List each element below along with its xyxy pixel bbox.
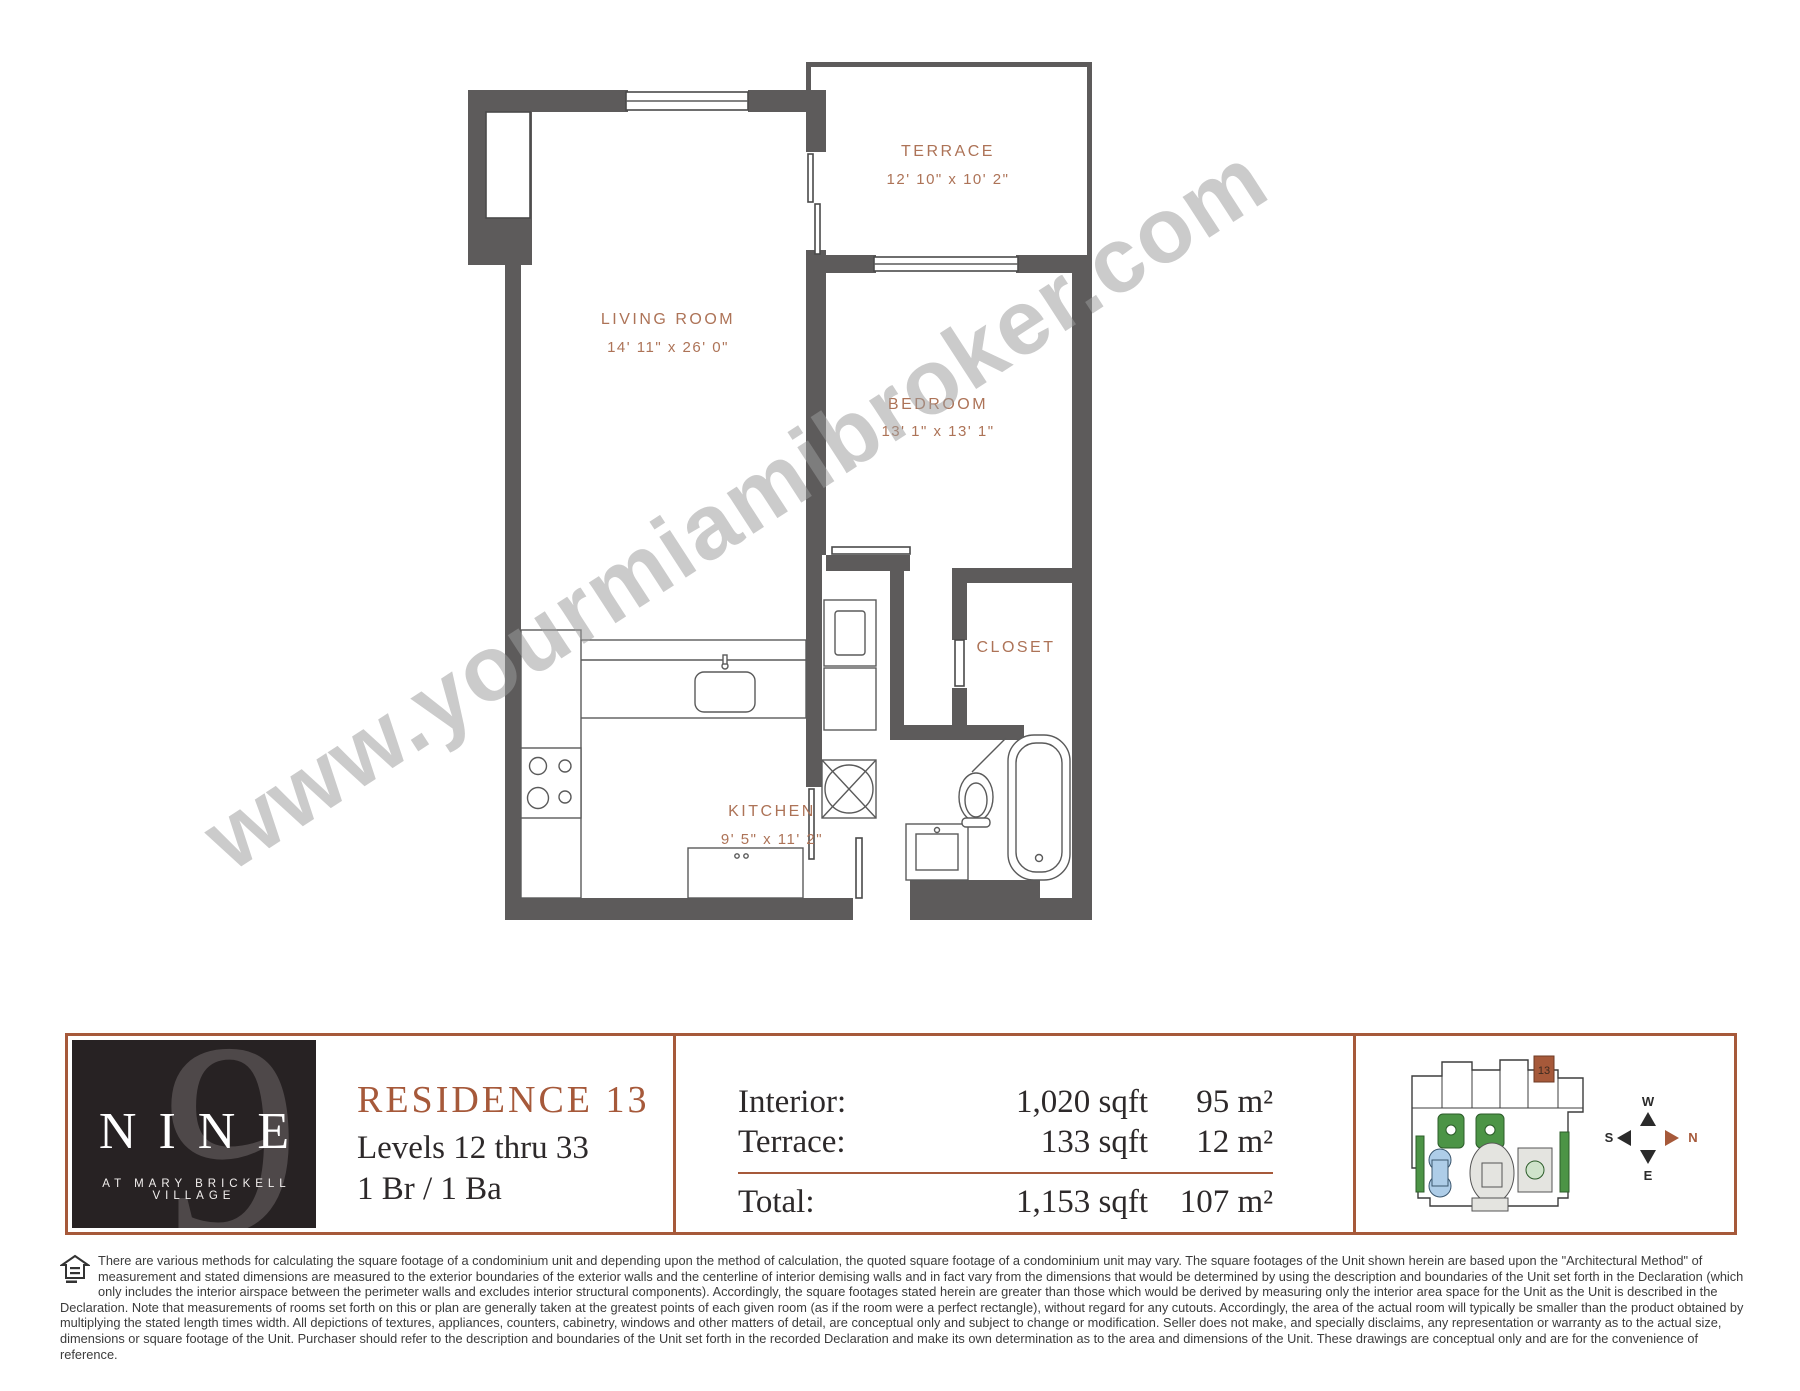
areas-total-rule <box>738 1172 1273 1174</box>
terrace-sqft: 133 sqft <box>918 1122 1148 1162</box>
total-sqm: 107 m² <box>1148 1182 1273 1222</box>
bath-door-swing <box>972 738 1006 772</box>
page: { "plan": { "rooms": { "terrace": {"name… <box>0 0 1800 1391</box>
residence-levels: Levels 12 thru 33 <box>357 1130 650 1167</box>
utility-appliance <box>824 668 876 730</box>
closet-door <box>955 640 964 686</box>
entry-pavilion <box>1472 1198 1508 1211</box>
areas-row-total: Total: 1,153 sqft 107 m² <box>738 1182 1273 1222</box>
residence-info: RESIDENCE 13 Levels 12 thru 33 1 Br / 1 … <box>357 1078 650 1208</box>
room-label-living: LIVING ROOM <box>601 311 735 328</box>
stove <box>521 748 581 818</box>
kitchen-faucet-icon <box>723 655 727 664</box>
room-label-kitchen: KITCHEN <box>728 803 816 820</box>
total-sqft: 1,153 sqft <box>918 1182 1148 1222</box>
residence-title: RESIDENCE 13 <box>357 1078 650 1122</box>
room-dims-kitchen: 9' 5" x 11' 2" <box>721 831 823 848</box>
logo-name: NINE <box>72 1102 316 1161</box>
kitchen-sink <box>695 672 755 712</box>
footer-divider <box>1353 1033 1356 1235</box>
residence-bed-bath: 1 Br / 1 Ba <box>357 1171 650 1208</box>
interior-sqft: 1,020 sqft <box>918 1082 1148 1122</box>
compass: W S N E <box>1595 1090 1725 1190</box>
hall-door <box>809 789 814 859</box>
room-dims-living: 14' 11" x 26' 0" <box>607 339 729 356</box>
compass-south-arrow-icon <box>1617 1130 1631 1146</box>
compass-west-label: W <box>1642 1094 1655 1109</box>
terrace-sqm: 12 m² <box>1148 1122 1273 1162</box>
island-faucet-icon <box>744 854 748 858</box>
equal-housing-icon <box>60 1254 90 1284</box>
room-label-closet: CLOSET <box>976 639 1055 656</box>
logo-tagline: AT MARY BRICKELL VILLAGE <box>72 1178 316 1202</box>
garden-strip <box>1560 1132 1569 1192</box>
room-label-terrace: TERRACE <box>901 143 995 160</box>
burner-icon <box>528 788 549 809</box>
footer-divider <box>673 1033 676 1235</box>
utility-appliance-inner <box>835 611 865 655</box>
vanity-faucet-icon <box>935 828 940 833</box>
tub-faucet-icon <box>1036 855 1043 862</box>
disclaimer: There are various methods for calculatin… <box>60 1253 1748 1362</box>
compass-west-arrow-icon <box>1640 1112 1656 1126</box>
compass-south-label: S <box>1605 1130 1614 1145</box>
interior-sqm: 95 m² <box>1148 1082 1273 1122</box>
burner-icon <box>559 791 571 803</box>
motor-court-center <box>1482 1163 1502 1187</box>
island-faucet-icon <box>735 854 739 858</box>
toilet-tank <box>962 818 990 827</box>
toilet <box>959 773 993 821</box>
garden-strip <box>1416 1136 1424 1192</box>
disclaimer-text: There are various methods for calculatin… <box>60 1253 1743 1362</box>
burner-icon <box>530 758 547 775</box>
total-label: Total: <box>738 1182 918 1222</box>
terrace-parapet <box>806 62 1092 260</box>
areas-row-terrace: Terrace: 133 sqft 12 m² <box>738 1122 1273 1162</box>
plaza-fountain <box>1526 1161 1544 1179</box>
compass-north-arrow-icon <box>1665 1130 1679 1146</box>
unit-13-label: 13 <box>1538 1065 1550 1077</box>
vanity-sink <box>916 834 958 870</box>
utility-fixtures <box>822 600 876 818</box>
wall-niche <box>486 112 530 218</box>
nine-logo: 9 NINE AT MARY BRICKELL VILLAGE <box>72 1040 316 1228</box>
pool <box>1432 1160 1448 1186</box>
compass-north-label: N <box>1688 1130 1697 1145</box>
areas-table: Interior: 1,020 sqft 95 m² Terrace: 133 … <box>738 1082 1273 1222</box>
terrace-slider-panel <box>808 154 813 202</box>
burner-icon <box>559 760 571 772</box>
room-dims-terrace: 12' 10" x 10' 2" <box>887 171 1010 188</box>
areas-row-interior: Interior: 1,020 sqft 95 m² <box>738 1082 1273 1122</box>
terrace-slider-panel <box>815 204 820 254</box>
bedroom-door <box>832 547 910 554</box>
interior-label: Interior: <box>738 1082 918 1122</box>
compass-east-label: E <box>1644 1168 1653 1183</box>
terrace-label: Terrace: <box>738 1122 918 1162</box>
entry-door <box>856 838 862 898</box>
compass-east-arrow-icon <box>1640 1150 1656 1164</box>
